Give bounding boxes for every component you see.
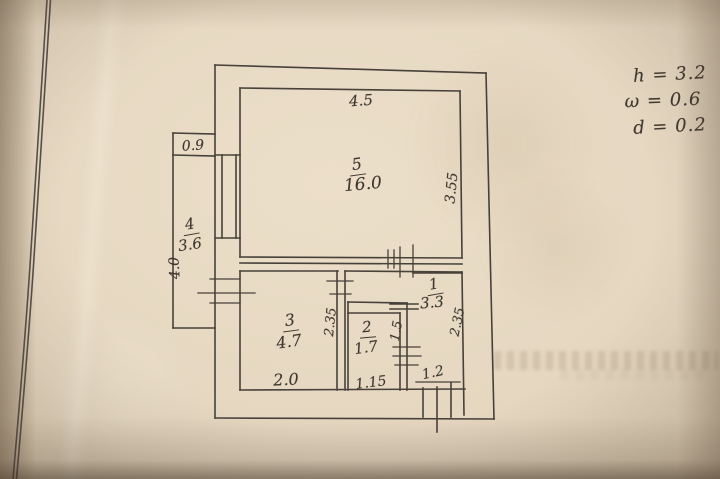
room-3-number: 3 [281, 311, 300, 332]
dim-room3-width: 2.0 [273, 371, 299, 388]
dim-room2-depth: 1.5 [389, 320, 405, 343]
dim-room5-depth: 3.55 [443, 172, 460, 204]
room-1-area: 3.3 [419, 294, 444, 311]
note-d-value: d = 0.2 [633, 116, 708, 138]
room-5-area: 16.0 [343, 175, 382, 195]
dim-room5-width: 4.5 [349, 93, 374, 110]
photographed-floor-plan-page: 4.5 0.9 3.55 4.0 2.35 1.5 2.35 2.0 1.15 … [0, 0, 720, 479]
dim-room2-width: 1.15 [355, 374, 388, 392]
dim-balcony-length: 4.0 [167, 257, 182, 280]
printed-page-border-lines [13, 0, 51, 479]
entrance-door-marks [423, 383, 451, 432]
room-2-area: 1.7 [353, 339, 379, 357]
balcony-window-symbol [215, 155, 240, 238]
room-3-area: 4.7 [275, 332, 302, 351]
note-height: h = 3.2 [633, 64, 708, 86]
dim-balcony-width: 0.9 [181, 138, 204, 154]
dim-room3-depth: 2.35 [323, 307, 339, 337]
room-2-number: 2 [358, 319, 375, 338]
floor-plan-drawing [0, 0, 720, 479]
note-wall-width: ω = 0.6 [624, 91, 701, 112]
room-4-area: 3.6 [177, 236, 203, 254]
room-4-number: 4 [181, 216, 199, 236]
outer-wall-outline [215, 65, 494, 419]
